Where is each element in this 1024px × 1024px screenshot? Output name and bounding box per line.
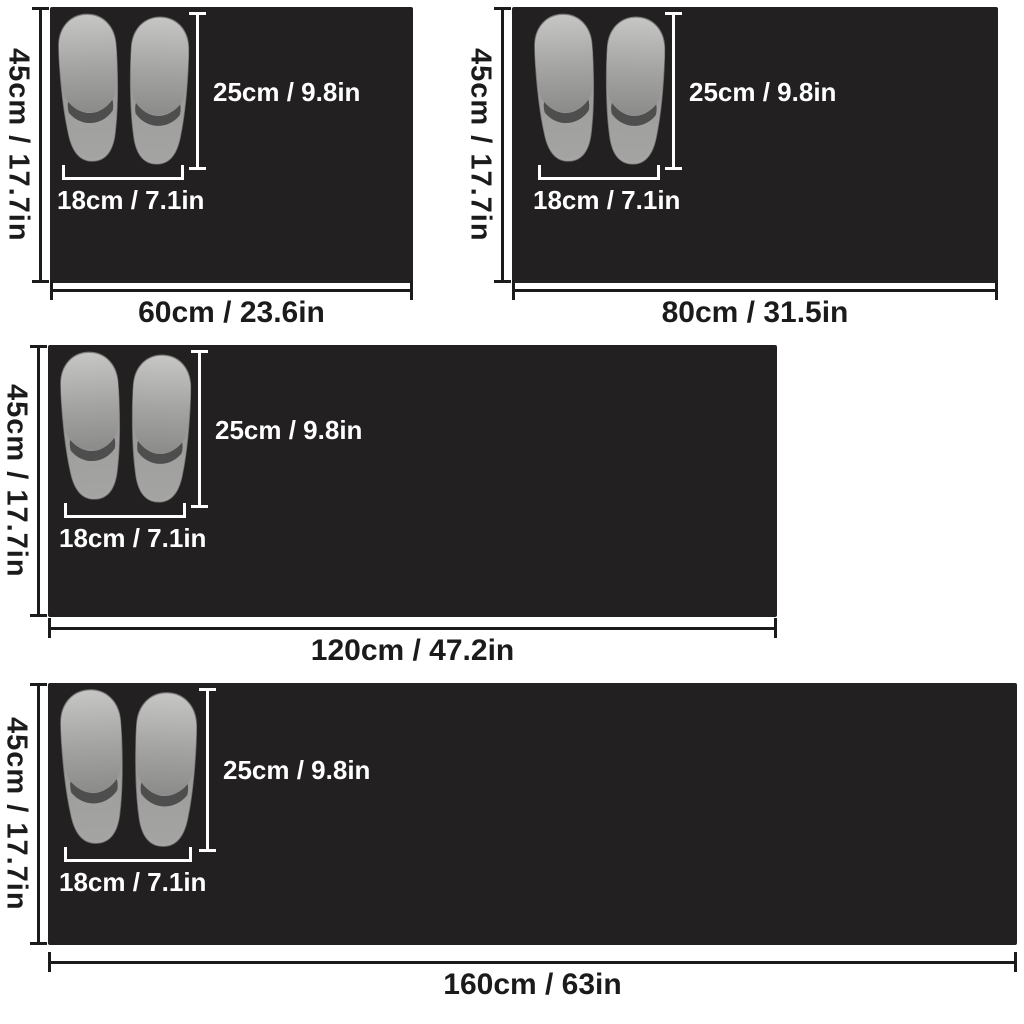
slipper-length-label: 25cm / 9.8in: [223, 755, 370, 786]
slipper-width-label: 18cm / 7.1in: [57, 185, 204, 216]
mat-width-dimension-line: [48, 627, 777, 630]
slipper-length-label: 25cm / 9.8in: [213, 77, 360, 108]
mat-height-label: 45cm / 17.7in: [0, 345, 32, 617]
slipper-length-dimension-line: [206, 688, 209, 852]
mat-surface: 25cm / 9.8in 18cm / 7.1in: [48, 683, 1017, 945]
mat-surface: 25cm / 9.8in 18cm / 7.1in: [512, 7, 998, 283]
mat-width-dimension-line: [48, 961, 1017, 964]
slipper-pair-icon: [534, 10, 668, 172]
mat-surface: 25cm / 9.8in 18cm / 7.1in: [50, 7, 413, 283]
slipper-width-label: 18cm / 7.1in: [59, 523, 206, 554]
mat-width-label: 160cm / 63in: [48, 968, 1017, 1002]
mat-height-label: 45cm / 17.7in: [0, 683, 32, 945]
slipper-length-dimension-line: [672, 12, 675, 170]
mat-height-label: 45cm / 17.7in: [464, 7, 496, 283]
mat-height-dimension-line: [501, 7, 504, 283]
slipper-width-dimension-line: [64, 859, 192, 862]
slipper-width-dimension-line: [538, 177, 660, 180]
slipper-length-label: 25cm / 9.8in: [689, 77, 836, 108]
slipper-pair-icon: [60, 348, 194, 510]
mat-height-dimension-line: [39, 7, 42, 283]
mat-width-dimension-line: [512, 289, 998, 292]
mat-height-dimension-line: [37, 345, 40, 617]
slipper-length-dimension-line: [198, 350, 201, 508]
slipper-pair-icon: [60, 686, 200, 854]
mat-width-label: 120cm / 47.2in: [48, 634, 777, 668]
mat-width-label: 80cm / 31.5in: [512, 296, 998, 330]
slipper-width-dimension-line: [62, 177, 184, 180]
mat-surface: 25cm / 9.8in 18cm / 7.1in: [48, 345, 777, 617]
slipper-length-dimension-line: [196, 12, 199, 170]
mat-height-dimension-line: [37, 683, 40, 945]
mat-height-label: 45cm / 17.7in: [2, 7, 34, 283]
slipper-pair-icon: [58, 10, 192, 172]
mat-width-label: 60cm / 23.6in: [50, 296, 413, 330]
mat-width-dimension-line: [50, 289, 413, 292]
size-diagram: 45cm / 17.7in 25cm / 9.8in 18cm / 7.1in …: [0, 0, 1024, 1024]
slipper-width-label: 18cm / 7.1in: [533, 185, 680, 216]
slipper-length-label: 25cm / 9.8in: [215, 415, 362, 446]
slipper-width-dimension-line: [64, 515, 186, 518]
slipper-width-label: 18cm / 7.1in: [59, 867, 206, 898]
